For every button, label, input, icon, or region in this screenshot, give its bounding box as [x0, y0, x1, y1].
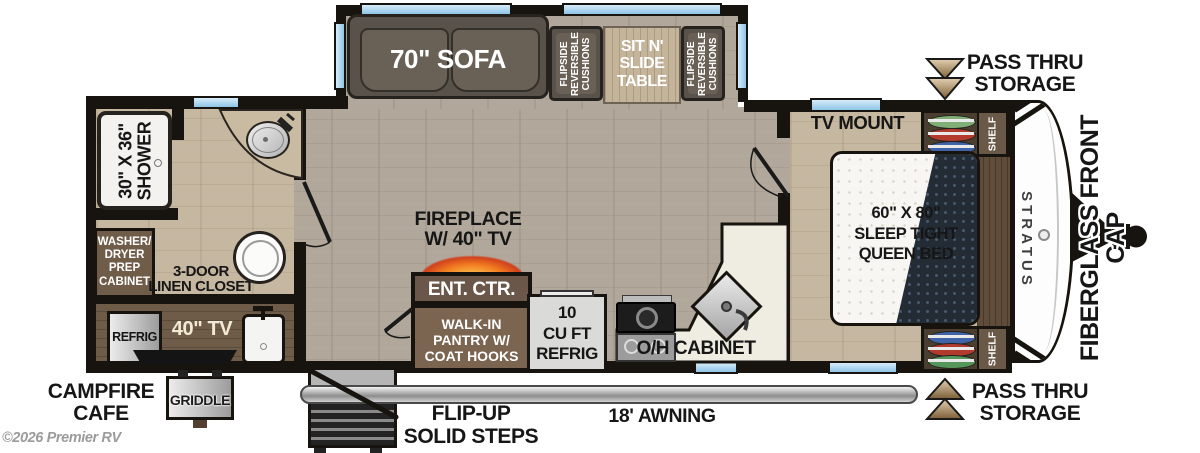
pass-thru-arrow-up-icon	[927, 399, 963, 419]
front-cap-label: FIBERGLASS FRONT CAP	[1078, 93, 1108, 383]
pass-thru-arrow-up-icon	[927, 379, 963, 399]
pantry-door-arc	[385, 331, 410, 338]
entry-door-leaf	[311, 371, 396, 417]
bathroom-faucet	[279, 119, 291, 130]
pass-thru-arrow-down-icon	[927, 78, 963, 99]
pass-thru-arrow-down-icon	[927, 59, 963, 79]
outdoor-tv	[133, 350, 237, 364]
bathroom-faucet-handle	[287, 114, 294, 120]
floorplan-canvas: 70" SOFA FLIPSIDEREVERSIBLECUSHIONS SIT …	[0, 0, 1200, 453]
bathroom-door-leaf	[304, 182, 330, 242]
pantry-door-leaf	[385, 309, 412, 331]
kitchen-faucet	[736, 311, 747, 330]
bedroom-door-leaf	[754, 148, 788, 196]
bathroom-door-arc	[304, 242, 330, 247]
details-layer	[0, 0, 1200, 453]
bedroom-door-arc	[751, 148, 781, 197]
